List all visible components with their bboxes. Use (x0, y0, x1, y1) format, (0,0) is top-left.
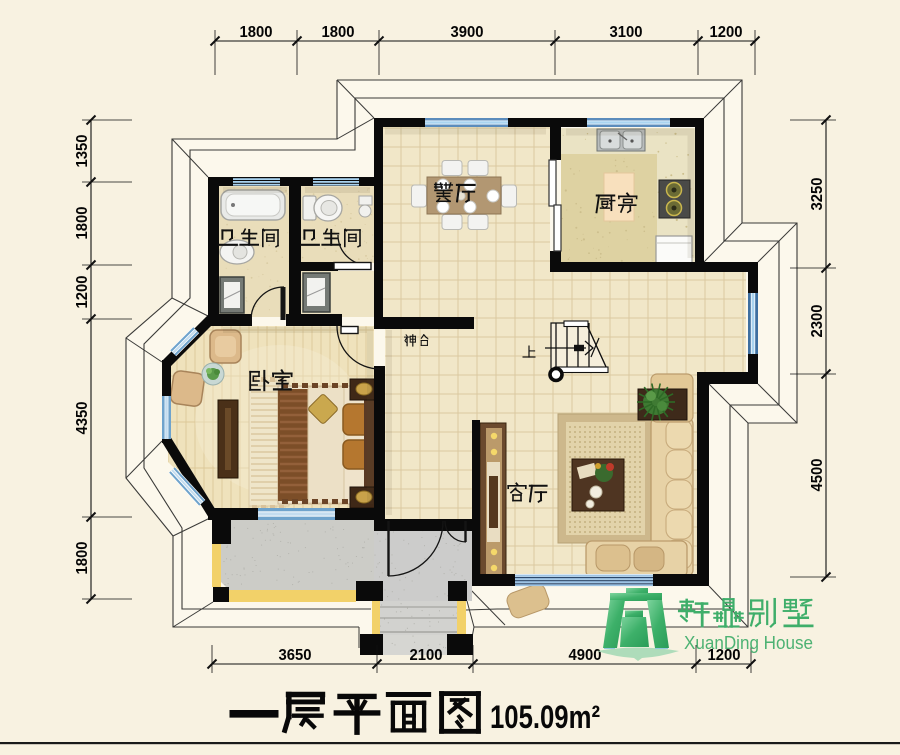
svg-text:1800: 1800 (74, 542, 91, 575)
svg-text:XuanDing House: XuanDing House (684, 632, 813, 653)
svg-text:1200: 1200 (710, 24, 743, 41)
svg-text:1800: 1800 (240, 24, 273, 41)
svg-text:2300: 2300 (809, 305, 826, 338)
svg-text:3100: 3100 (610, 24, 643, 41)
svg-text:3650: 3650 (279, 647, 312, 664)
svg-text:4350: 4350 (74, 402, 91, 435)
svg-text:105.09m²: 105.09m² (490, 699, 600, 735)
svg-text:1800: 1800 (322, 24, 355, 41)
svg-text:2100: 2100 (410, 647, 443, 664)
svg-text:4900: 4900 (569, 647, 602, 664)
svg-text:4500: 4500 (809, 459, 826, 492)
svg-text:1800: 1800 (74, 207, 91, 240)
svg-text:3900: 3900 (451, 24, 484, 41)
svg-text:1200: 1200 (74, 276, 91, 309)
svg-text:3250: 3250 (809, 178, 826, 211)
svg-text:1350: 1350 (74, 135, 91, 168)
